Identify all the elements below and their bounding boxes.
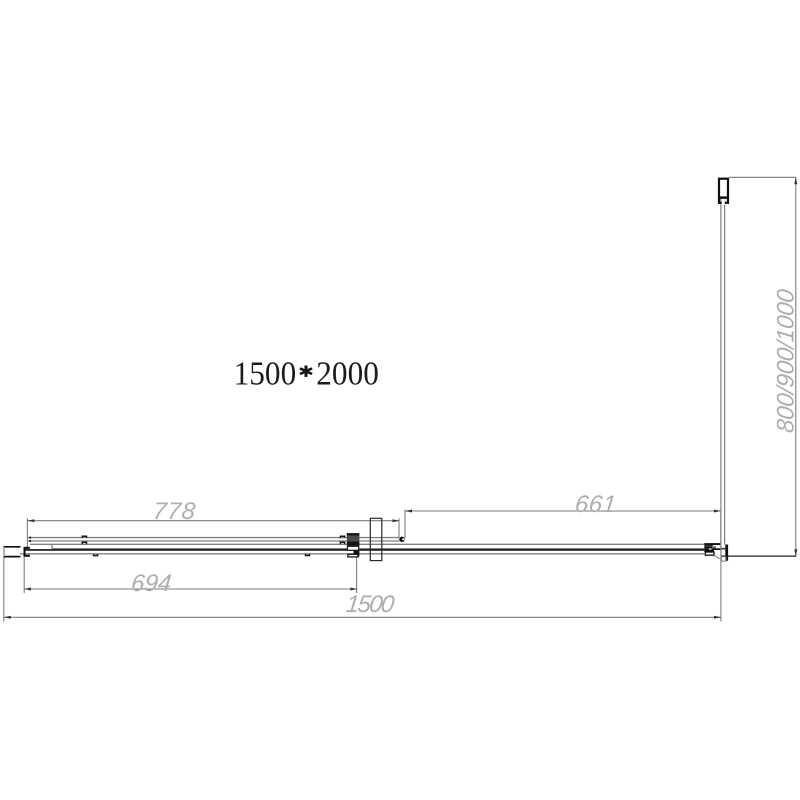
svg-text:694: 694 [130,570,173,597]
svg-text:778: 778 [152,498,198,525]
svg-text:1500: 1500 [234,355,297,392]
svg-text:2000: 2000 [316,355,379,392]
svg-text:661: 661 [574,491,618,518]
svg-text:1500: 1500 [345,591,397,618]
svg-text:800/900/1000: 800/900/1000 [773,287,800,434]
